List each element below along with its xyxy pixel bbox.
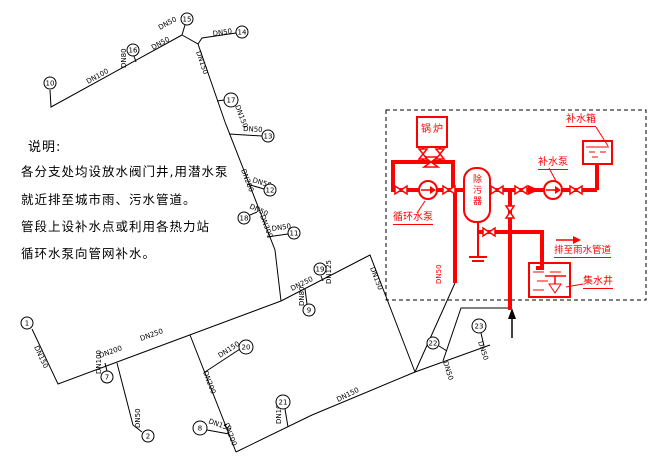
network-node-number: 18 (240, 215, 249, 223)
notes-line: 循环水泵向管网补水。 (21, 243, 156, 262)
pipe-line (415, 283, 455, 372)
network-node-number: 19 (316, 266, 325, 274)
valve-icon (436, 149, 444, 159)
network-node-number: 1 (25, 320, 29, 328)
network-node-number: 20 (242, 344, 251, 352)
pipe-size-label: DN50 (134, 408, 142, 428)
pipe-line (443, 308, 510, 361)
makeup-pump-icon (544, 181, 562, 199)
network-node-number: 17 (227, 97, 236, 105)
pipe-size-label: DN50 (157, 15, 178, 31)
pipe-size-label: DN50 (243, 125, 263, 134)
network-node-number: 13 (264, 133, 273, 141)
drawing-canvas: DN100DN80DN50DN50DN50DN150DN150DN200DN30… (0, 0, 650, 463)
pipe-line-mid-trunk (281, 255, 415, 372)
network-node-number: 7 (105, 374, 109, 382)
valve-icon (506, 206, 514, 218)
pipe-line (229, 134, 262, 136)
collection-well (529, 232, 570, 297)
circulation-pump-icon (419, 181, 437, 199)
network-node-number: 16 (129, 47, 138, 55)
network-lines (32, 25, 510, 452)
valve-icon (443, 186, 455, 194)
network-node-number: 2 (146, 433, 150, 441)
flow-arrow-icon (508, 308, 516, 338)
network-node-number: 10 (46, 80, 55, 88)
pipe-size-label: DN150 (32, 344, 49, 369)
pipe-size-label: DN100 (95, 350, 103, 374)
network-node-number: 9 (307, 307, 311, 315)
pipe-size-label: DN125 (325, 260, 333, 284)
network-node-number: 12 (266, 187, 275, 195)
discharge-arrow-icon (556, 236, 581, 244)
network-node-number: 11 (290, 230, 299, 238)
discharge-label: 排至雨水管道 (554, 246, 611, 258)
valve-icon (570, 186, 582, 194)
notes-line: 就近排至城市雨、污水管道。 (21, 189, 197, 208)
network-node-number: 15 (183, 16, 192, 24)
pipe-line (439, 346, 447, 351)
riser-pipe-size-label: DN50 (435, 264, 443, 284)
drain-ground-icon (469, 257, 487, 261)
pipe-size-label: DN200 (201, 370, 217, 395)
network-node-number: 21 (279, 399, 288, 407)
valve-icon (419, 149, 427, 159)
network-node-number: 8 (198, 425, 202, 433)
network-node-number: 14 (238, 29, 247, 37)
pipe-size-label: DN50 (441, 360, 455, 381)
pipe-size-label: DN50 (476, 340, 490, 361)
pipe-line (182, 25, 185, 35)
valve-icon (483, 228, 495, 236)
boiler-label: 锅炉 (421, 125, 445, 135)
pipe-size-label: DN50 (150, 35, 171, 51)
circulation-pump-label: 循环水泵 (393, 213, 433, 225)
valve-icon (395, 186, 407, 194)
check-valve-icon (528, 185, 539, 195)
pipe-size-label: DN250 (139, 327, 164, 343)
notes-title: 说明: (28, 136, 61, 155)
pipe-line (105, 363, 107, 371)
makeup-pump-label: 补水泵 (538, 158, 568, 170)
pipe-size-label: DN150 (368, 266, 384, 291)
pipe-size-label: DN150 (335, 386, 360, 404)
network-node-number: 23 (475, 323, 484, 331)
makeup-tank (583, 141, 612, 164)
pipe-line (217, 100, 224, 101)
valve-icon (515, 186, 527, 194)
valve-icon (491, 186, 503, 194)
notes-line: 各分支处均设放水阀门井,用潜水泵 (21, 161, 228, 180)
collection-well-label: 集水井 (583, 277, 613, 289)
makeup-tank-label: 补水箱 (566, 115, 596, 127)
pipe-size-label: DN50 (212, 27, 232, 38)
strainer-label: 除污器 (471, 174, 480, 207)
pipe-line-bottom-trunk (236, 345, 490, 452)
pipe-size-label: DN150 (194, 50, 209, 75)
network-node-number: 22 (429, 340, 438, 348)
pipe-line (285, 409, 288, 427)
notes-line: 管段上设补水点或利用各热力站 (21, 216, 210, 235)
